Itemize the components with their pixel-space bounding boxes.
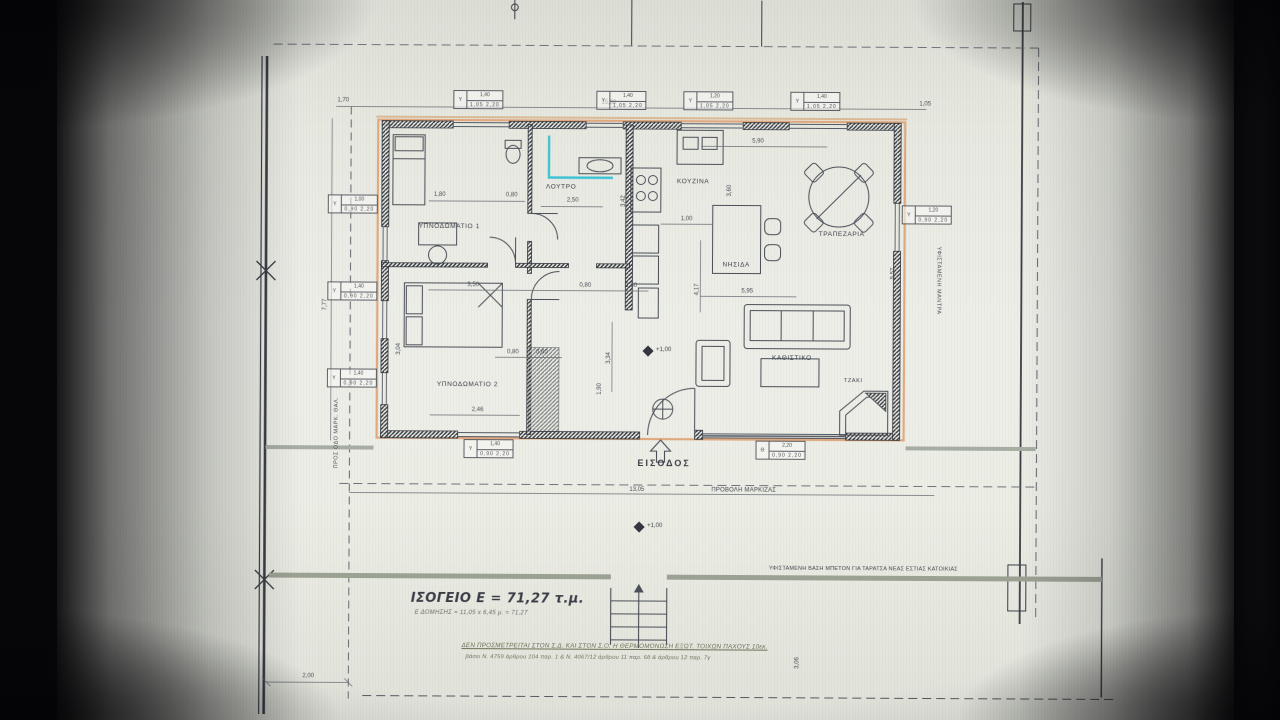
doors xyxy=(489,213,696,435)
floor-title: ΙΣΟΓΕΙΟ Ε = 71,27 τ.μ. xyxy=(411,591,584,607)
entrance-stairs xyxy=(610,440,670,648)
tag-letter: Υ xyxy=(684,92,697,109)
floor-plan-sheet: ΥΠΝΟΔΩΜΑΤΙΟ 1 ΛΟΥΤΡΟ ΚΟΥΖΙΝΑ ΤΡΑΠΕΖΑΡΙΑ … xyxy=(0,0,1280,720)
room-label-dining: ΤΡΑΠΕΖΑΡΙΑ xyxy=(819,231,865,238)
tag-letter: Υ xyxy=(329,195,342,212)
window-tag: Υ 1,400,90 2,20 xyxy=(327,368,377,387)
dimension: 5,57 xyxy=(890,268,896,280)
boundary-dashed-lines xyxy=(270,44,1119,702)
left-boundary-label: ΠΡΟΣ ΟΔΟ ΜΑΡΚ. ΘΑΛ. xyxy=(333,397,339,469)
room-label-bathroom: ΛΟΥΤΡΟ xyxy=(546,184,576,191)
dimension: 0,80 xyxy=(506,192,518,198)
dimension: 3,42 xyxy=(621,195,627,207)
dimension: 2,00 xyxy=(302,673,314,679)
highlight-outline xyxy=(375,117,908,441)
tag-sill: 1,05 2,20 xyxy=(804,103,839,111)
window-tag: Υ 1,201,05 2,20 xyxy=(683,91,733,110)
room-label-living: ΚΑΘΙΣΤΙΚΟ xyxy=(772,355,812,362)
tag-size: 1,40 xyxy=(341,282,376,292)
tag-size: 1,40 xyxy=(610,92,645,102)
tag-letter: Υ xyxy=(903,206,916,223)
dimension: 1,30 xyxy=(625,283,637,289)
tag-size: 1,00 xyxy=(342,195,377,205)
tag-size: 2,20 xyxy=(770,442,805,452)
window-tag: Υ 1,200,90 2,20 xyxy=(902,205,952,224)
tag-sill: 0,90 2,20 xyxy=(341,379,376,387)
dimension-lines xyxy=(262,106,936,690)
tag-size: 1,40 xyxy=(467,91,502,101)
tag-size: 1,40 xyxy=(341,369,376,379)
dimension: 2,46 xyxy=(472,407,484,413)
dimension: 3,34 xyxy=(606,352,612,364)
dimension: 4,17 xyxy=(694,284,700,296)
tag-sill: 0,90 2,20 xyxy=(916,216,951,224)
dimension: 3,50 xyxy=(467,282,479,288)
tag-size: 1,40 xyxy=(804,93,839,103)
dimension: 1,05 xyxy=(919,101,931,107)
dimension: 1,80 xyxy=(434,192,446,198)
blueprint-photo: ΥΠΝΟΔΩΜΑΤΙΟ 1 ΛΟΥΤΡΟ ΚΟΥΖΙΝΑ ΤΡΑΠΕΖΑΡΙΑ … xyxy=(0,0,1280,720)
dimension: 5,90 xyxy=(752,139,764,145)
dimension: 13,05 xyxy=(629,487,644,493)
dimension: 3,60 xyxy=(727,185,733,197)
existing-base-note: ΥΦΙΣΤΑΜΕΝΗ ΒΑΣΗ ΜΠΕΤΟΝ ΓΙΑ ΤΑΡΑΤΣΑ ΝΕΑΣ … xyxy=(769,566,958,573)
window-tag: Υ 1,401,05 2,20 xyxy=(453,90,503,109)
tag-sill: 1,05 2,20 xyxy=(467,101,502,109)
tag-sill: 1,05 2,20 xyxy=(697,102,732,110)
regulation-note-2: βάσει Ν. 4759 άρθρου 104 παρ. 1 & Ν. 406… xyxy=(465,654,710,661)
room-label-bedroom2: ΥΠΝΟΔΩΜΑΤΙΟ 2 xyxy=(437,381,498,388)
living-furniture xyxy=(696,304,889,435)
interior-walls xyxy=(381,124,634,435)
tag-letter: Θ xyxy=(756,442,769,459)
room-label-fireplace: ΤΖΑΚΙ xyxy=(844,378,863,384)
tag-sill: 0,90 2,20 xyxy=(342,205,377,213)
tag-sill: 0,90 2,20 xyxy=(341,292,376,300)
tag-size: 1,20 xyxy=(916,206,951,216)
floor-subtitle: Ε ΔΟΜΗΣΗΣ = 11,05 x 6,45 μ. = 71,27 xyxy=(415,610,528,617)
tag-letter: Υ xyxy=(597,92,610,109)
right-boundary-label: ΥΦΙΣΤΑΜΕΝΗ ΜΑΝΤΡΑ xyxy=(935,247,941,315)
window-tag: Υ 1,400,90 2,20 xyxy=(463,439,513,458)
window-tag: Υ 1,401,05 2,20 xyxy=(596,91,646,110)
tag-sill: 0,90 2,20 xyxy=(477,450,512,458)
room-label-kitchen: ΚΟΥΖΙΝΑ xyxy=(677,178,709,185)
dimension: 1,00 xyxy=(681,216,693,222)
dining-furniture xyxy=(803,162,875,234)
dimension: 3,04 xyxy=(396,343,402,355)
tag-sill: 0,90 2,20 xyxy=(769,452,804,460)
dimension: 7,77 xyxy=(322,299,328,311)
dimension: 0,80 xyxy=(579,283,591,289)
room-label-bedroom1: ΥΠΝΟΔΩΜΑΤΙΟ 1 xyxy=(419,223,480,230)
tag-size: 1,20 xyxy=(697,92,732,102)
tag-letter: Υ xyxy=(454,91,467,108)
door-tag: Θ 2,200,90 2,20 xyxy=(755,441,805,460)
dimension: 0,80 xyxy=(507,349,519,355)
dimension: 1,90 xyxy=(597,383,603,395)
bedroom1-furniture xyxy=(393,135,458,264)
photo-dark-edge-right xyxy=(1234,0,1280,720)
dimension: 2,50 xyxy=(567,198,579,204)
window-tag: Υ 1,400,90 2,20 xyxy=(327,281,377,300)
window-tag: Υ 1,401,05 2,20 xyxy=(790,92,840,111)
tag-letter: Υ xyxy=(328,369,341,386)
tag-letter: Υ xyxy=(328,282,341,299)
exterior-walls xyxy=(381,121,902,441)
photo-dark-edge-left xyxy=(0,0,57,720)
room-label-island: ΝΗΣΙΔΑ xyxy=(722,261,750,268)
dimension: 3,06 xyxy=(794,657,800,669)
bedroom2-furniture xyxy=(404,283,502,348)
tag-size: 1,40 xyxy=(478,440,513,450)
bathroom-fixtures xyxy=(505,135,621,178)
canopy-label: ΠΡΟΒΟΛΗ ΜΑΡΚΙΖΑΣ xyxy=(711,487,776,493)
dimension: 1,70 xyxy=(337,97,349,103)
tag-letter: Υ xyxy=(791,93,804,110)
dimension: 0,60 xyxy=(536,349,548,355)
dimension: 5,95 xyxy=(741,289,753,295)
tag-sill: 1,05 2,20 xyxy=(610,102,645,110)
window-tag: Υ 1,000,90 2,20 xyxy=(328,194,378,213)
level-marker-label-2: +1,00 xyxy=(647,523,662,529)
entrance-label: ΕΙΣΟΔΟΣ xyxy=(637,458,690,468)
level-marker-label-1: +1,00 xyxy=(656,347,671,353)
tag-letter: Υ xyxy=(464,440,477,457)
